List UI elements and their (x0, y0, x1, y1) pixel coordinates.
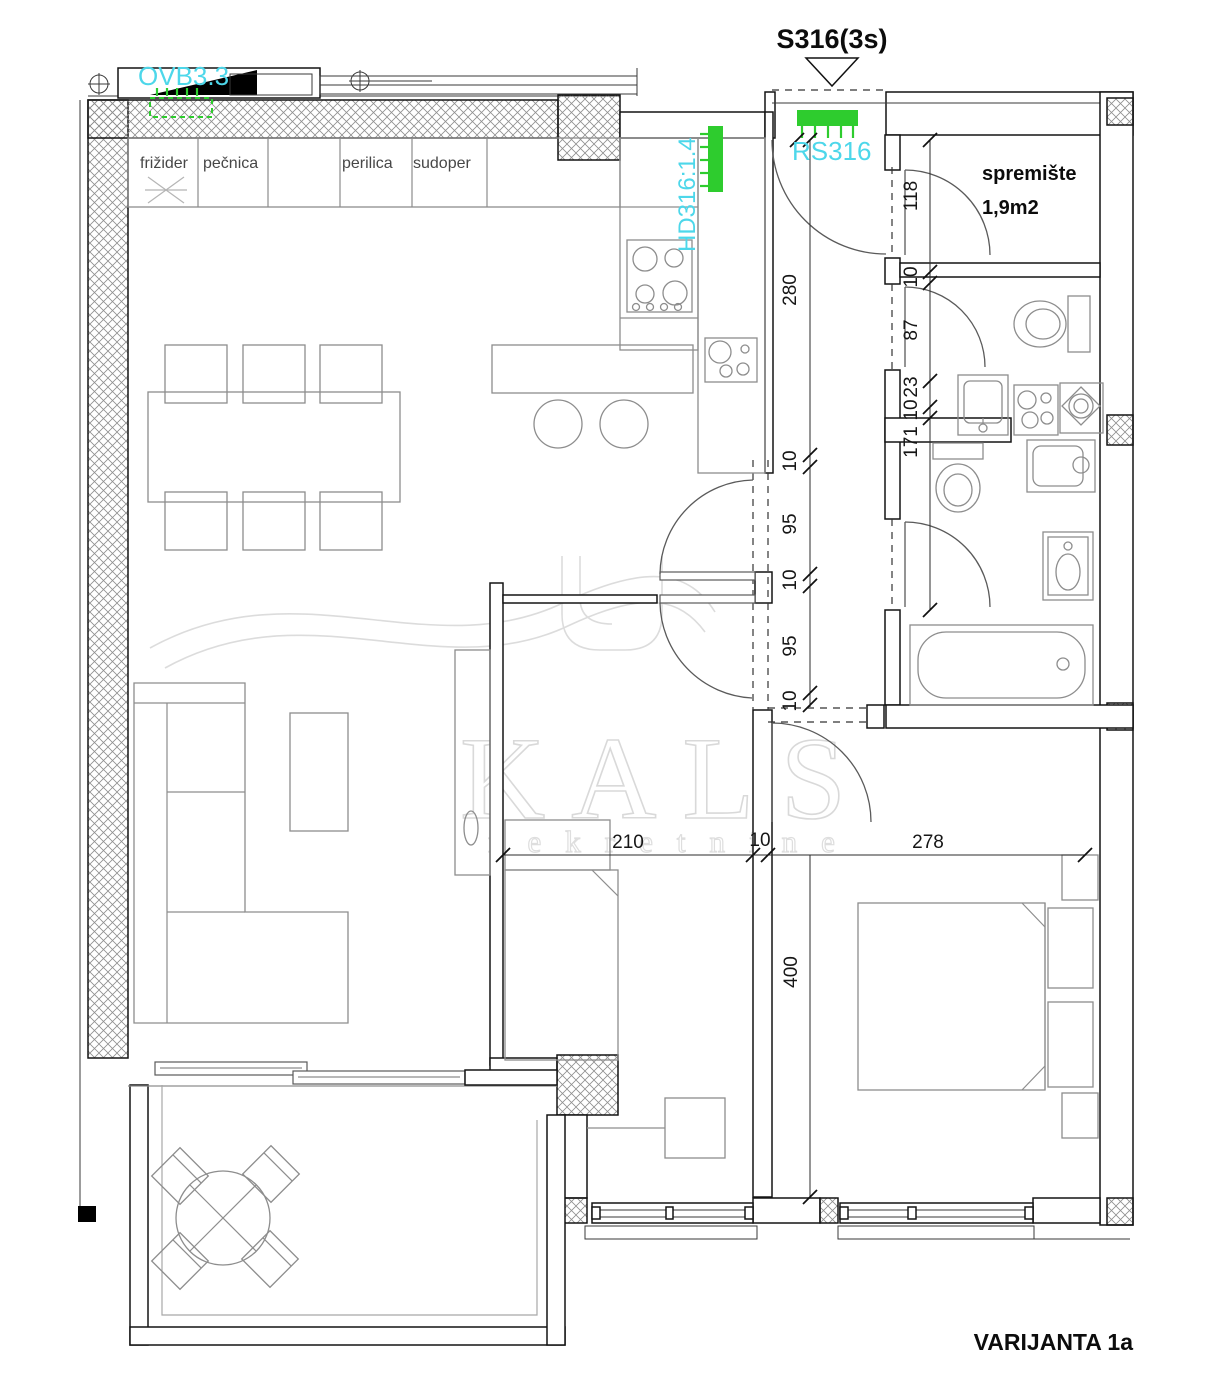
wall-corridor-right (885, 135, 900, 170)
dimension-chain-right: 118 10 87 23 10 171 (901, 133, 937, 617)
dimension-bedroom-depth: 400 (781, 855, 817, 1204)
vent-label: OVB3.3 (138, 61, 229, 91)
wall-right-exterior (1100, 92, 1133, 1225)
fridge-symbol (145, 177, 187, 203)
balcony-parapet-left (130, 1085, 148, 1345)
balcony-chair (152, 1148, 209, 1205)
blanket-fold (592, 870, 618, 896)
dim-118: 118 (901, 181, 922, 211)
dim-10: 10 (901, 399, 922, 420)
dining-chair (320, 492, 382, 550)
dim-10: 10 (901, 266, 922, 287)
bath-door-swing (905, 522, 990, 607)
duct-label: HD316:1.4 (674, 137, 701, 252)
balcony (128, 1062, 557, 1315)
wall-bottom (1033, 1198, 1100, 1223)
dimension-chain-corridor: 280 10 95 10 95 10 (780, 133, 817, 712)
window-bedroom2 (840, 1203, 1033, 1223)
watermark-subtitle: nekretnine (488, 824, 859, 859)
entry-arrow-icon (806, 58, 858, 86)
kitchen-peninsula (492, 345, 693, 393)
single-bed (505, 870, 618, 1060)
bar-stool (600, 400, 648, 448)
double-bed (858, 903, 1045, 1090)
dim-10: 10 (780, 569, 801, 590)
bath-toilet (933, 443, 983, 512)
washing-machine (1060, 383, 1103, 433)
wall-left-exterior (88, 100, 128, 1058)
pillow (1048, 908, 1093, 988)
wall-top-exterior (88, 100, 558, 138)
label-sink: sudoper (413, 155, 471, 172)
balcony-table (176, 1171, 270, 1265)
balcony-chair (243, 1146, 300, 1203)
watermark-swoosh (150, 577, 715, 648)
balcony-parapet-bottom (130, 1327, 565, 1345)
pillow (1048, 1002, 1093, 1087)
sofa (134, 683, 348, 1023)
wall-pier (557, 1055, 618, 1115)
sanitary (910, 296, 1103, 705)
dining-chair (165, 345, 227, 403)
facade-block (78, 1206, 96, 1222)
wall-pier (1107, 98, 1133, 125)
living-door-swing (660, 480, 753, 574)
bar-stool (534, 400, 582, 448)
floor-plan-drawing: KALS nekretnine (0, 0, 1220, 1400)
dim-10: 10 (780, 690, 801, 711)
storage-area-label: 1,9m2 (982, 197, 1039, 219)
dim-10: 10 (749, 830, 770, 851)
wall-top-mid (620, 112, 772, 138)
watermark-swoosh (165, 602, 705, 668)
wall-bath-bottom (886, 705, 1133, 728)
wall-pier (1107, 415, 1133, 445)
bathtub (910, 625, 1093, 705)
blanket-fold (1022, 903, 1045, 927)
wall-top-right (886, 92, 1133, 135)
label-washer: perilica (342, 155, 393, 172)
kitchen-area: frižider pečnica perilica sudoper (128, 138, 765, 473)
dining-chair (243, 345, 305, 403)
blanket-fold (1022, 1066, 1045, 1090)
radiator-label: RS316 (792, 136, 872, 166)
dining-table (148, 392, 400, 502)
dim-10: 10 (780, 450, 801, 471)
wall-pier (558, 95, 620, 160)
dining-chair (320, 345, 382, 403)
titles: S316(3s) spremište 1,9m2 VARIJANTA 1a (776, 24, 1133, 1355)
bedroom-2 (858, 855, 1098, 1138)
openings (753, 90, 892, 722)
living-door-leaf (660, 572, 755, 580)
laundry-sink (1014, 385, 1058, 435)
unit-code-title: S316(3s) (776, 24, 887, 54)
dim-400: 400 (781, 956, 802, 988)
nightstand (1062, 1093, 1098, 1138)
wall-bedroom1-top (503, 595, 657, 603)
nightstand (1062, 855, 1098, 900)
label-oven: pečnica (203, 155, 258, 172)
coffee-table (290, 713, 348, 831)
balcony-chair (242, 1231, 299, 1288)
dim-95: 95 (780, 635, 801, 656)
dining-chair (243, 492, 305, 550)
wall-bedroom-divider (753, 710, 772, 1197)
window-sill (585, 1226, 757, 1239)
dim-87: 87 (901, 319, 922, 340)
living-room (134, 650, 490, 1023)
sliding-door-fixed (465, 1070, 557, 1085)
wall-kitchen-corridor (765, 112, 773, 473)
dim-210: 210 (612, 832, 644, 853)
wall-pier (1107, 1198, 1133, 1225)
wall-stub (867, 705, 884, 728)
storage-room-label: spremište (982, 163, 1077, 185)
vanity-sink (1043, 532, 1093, 600)
dim-171: 171 (901, 426, 922, 458)
dining-chair (165, 492, 227, 550)
dining-area (148, 345, 400, 550)
wall-bedroom1-left (490, 583, 503, 1065)
kitchen-sink-unit (705, 338, 757, 382)
bath-washbasin (1027, 440, 1095, 492)
variant-label: VARIJANTA 1a (974, 1329, 1134, 1355)
dim-280: 280 (780, 274, 801, 306)
dim-23: 23 (901, 376, 922, 397)
balcony-parapet-right (547, 1115, 565, 1345)
dim-278: 278 (912, 832, 944, 853)
desk (665, 1098, 725, 1158)
wall-corridor-right (885, 610, 900, 705)
wall-corridor-right (885, 258, 900, 284)
floor-plan-page: KALS nekretnine (0, 0, 1220, 1400)
wall-pier (820, 1198, 838, 1223)
wall-hinge-block (755, 572, 772, 603)
balcony-floor-line (162, 1085, 537, 1315)
wc-toilet (1014, 296, 1090, 352)
wall-bottom (753, 1198, 820, 1223)
window-sill (838, 1226, 1034, 1239)
label-fridge: frižider (140, 155, 189, 172)
bedroom1-door-swing (660, 603, 752, 698)
bedroom1-door-leaf (660, 595, 755, 603)
window-bedroom1 (592, 1203, 753, 1223)
kitchen-counter (128, 138, 620, 207)
wall-corridor-right (885, 370, 900, 519)
dim-95: 95 (780, 513, 801, 534)
